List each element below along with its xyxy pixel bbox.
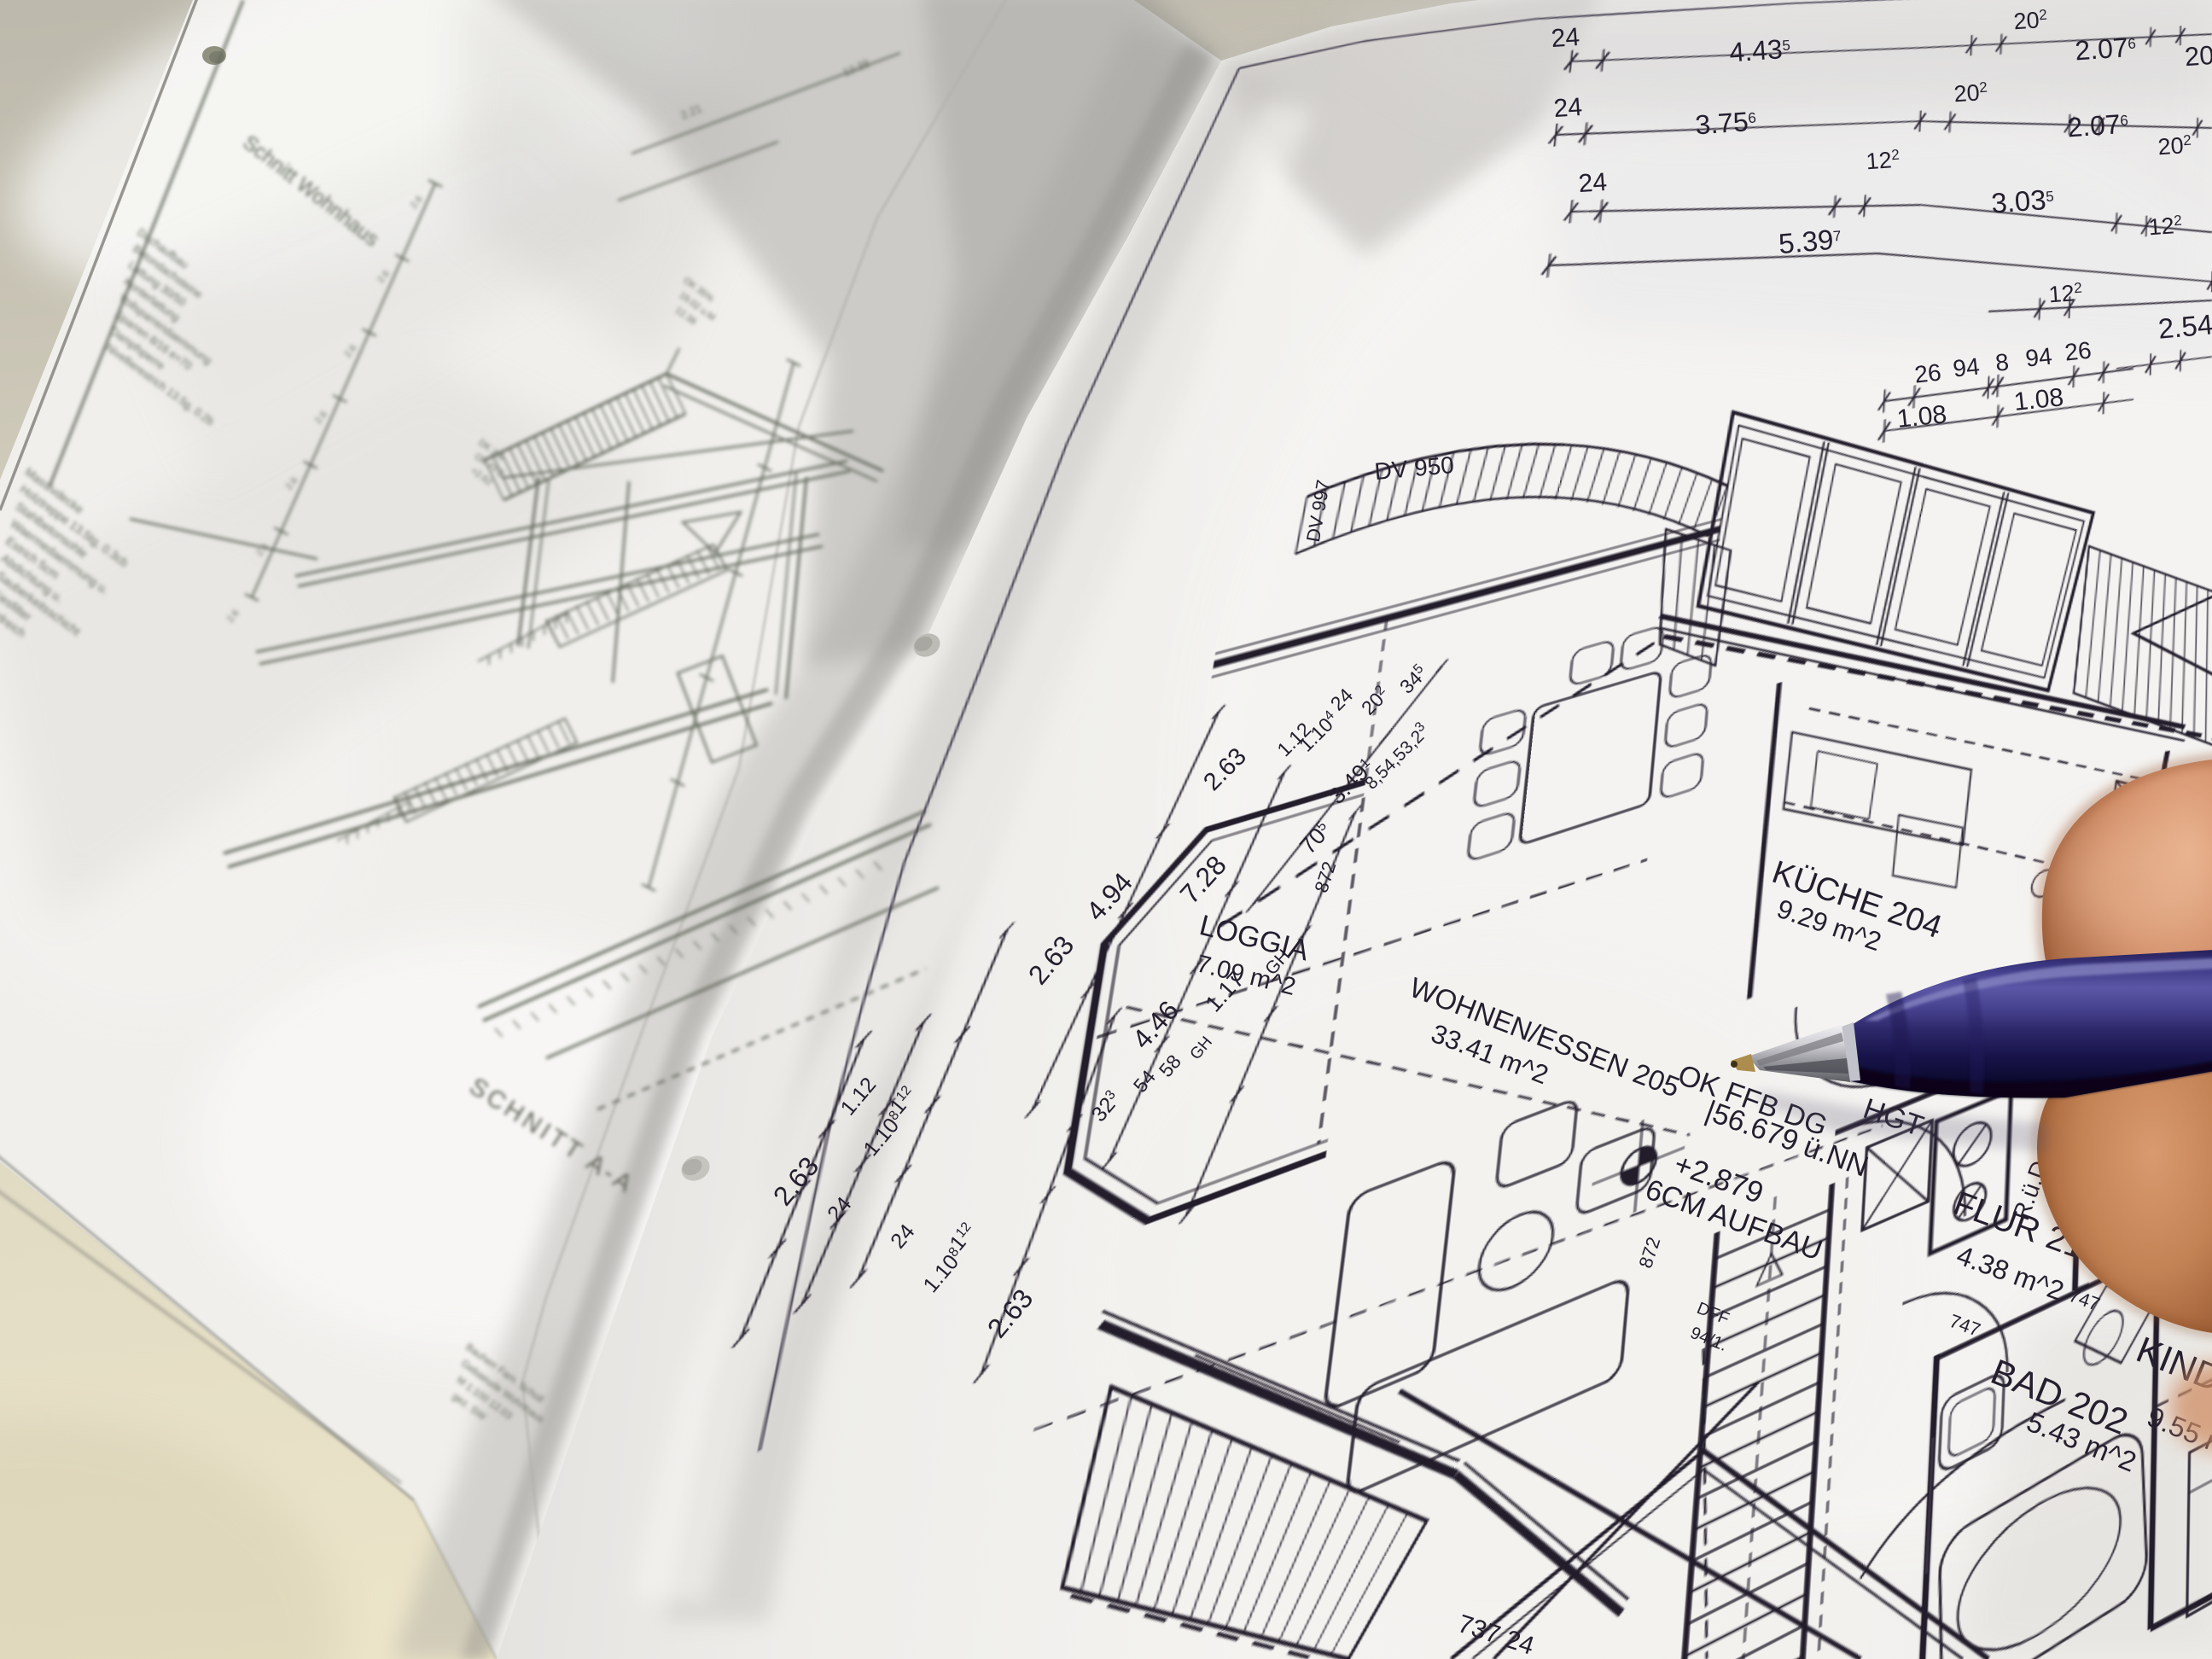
svg-text:2.63: 2.63: [767, 1151, 825, 1212]
svg-text:26: 26: [1913, 359, 1942, 388]
svg-text:2.076: 2.076: [2074, 32, 2137, 67]
svg-text:20: 20: [2184, 40, 2212, 72]
svg-text:4.46: 4.46: [1126, 994, 1185, 1054]
svg-text:DV 997: DV 997: [1302, 478, 1334, 544]
svg-text:872: 872: [1310, 859, 1340, 895]
svg-text:2.63: 2.63: [1022, 930, 1080, 991]
svg-text:747: 747: [1947, 1310, 1983, 1341]
svg-text:1.108112: 1.108112: [913, 1219, 986, 1297]
svg-text:2.076: 2.076: [2066, 108, 2129, 143]
svg-text:8: 8: [1994, 348, 2011, 375]
svg-text:3.756: 3.756: [1694, 106, 1757, 141]
svg-text:122: 122: [2048, 280, 2084, 308]
svg-text:4.94: 4.94: [1080, 866, 1138, 926]
svg-text:5.397: 5.397: [1778, 223, 1843, 259]
svg-text:202: 202: [1953, 79, 1989, 108]
svg-text:24: 24: [1578, 168, 1609, 198]
svg-text:24: 24: [1553, 93, 1584, 123]
svg-text:737 24: 737 24: [1454, 1610, 1537, 1659]
svg-text:4.435: 4.435: [1728, 33, 1791, 68]
svg-text:202: 202: [2013, 7, 2049, 35]
svg-text:747: 747: [2066, 1284, 2103, 1315]
svg-text:GH: GH: [1187, 1033, 1216, 1063]
svg-text:94/1.: 94/1.: [1688, 1324, 1730, 1355]
svg-text:DFF: DFF: [1694, 1299, 1732, 1329]
svg-text:7.28: 7.28: [1174, 849, 1232, 909]
svg-text:122: 122: [2148, 212, 2184, 241]
svg-text:24: 24: [1551, 23, 1581, 53]
svg-text:323: 323: [1086, 1087, 1125, 1126]
svg-text:2.63: 2.63: [981, 1284, 1039, 1344]
svg-text:24: 24: [886, 1220, 919, 1253]
svg-text:1.12: 1.12: [836, 1073, 882, 1120]
svg-text:DV 950: DV 950: [1373, 451, 1455, 485]
svg-text:94: 94: [1952, 353, 1981, 382]
svg-text:3.035: 3.035: [1990, 183, 2055, 219]
svg-text:202: 202: [1357, 683, 1394, 719]
svg-text:54: 54: [1129, 1066, 1160, 1097]
svg-text:872: 872: [1634, 1234, 1664, 1271]
svg-text:1.08: 1.08: [2012, 383, 2065, 416]
svg-text:94: 94: [2024, 343, 2053, 372]
svg-text:24: 24: [823, 1192, 856, 1225]
svg-text:8,54,53,23: 8,54,53,23: [1359, 719, 1434, 794]
svg-text:1.08: 1.08: [1895, 400, 1948, 434]
svg-text:122: 122: [1866, 147, 1901, 175]
svg-text:2.63: 2.63: [1198, 742, 1252, 796]
svg-text:2.54: 2.54: [2157, 308, 2212, 344]
svg-text:202: 202: [2157, 132, 2193, 160]
svg-text:345: 345: [1395, 661, 1432, 698]
svg-text:705: 705: [1295, 817, 1336, 859]
svg-text:26: 26: [2064, 337, 2093, 366]
svg-text:58: 58: [1155, 1051, 1185, 1081]
